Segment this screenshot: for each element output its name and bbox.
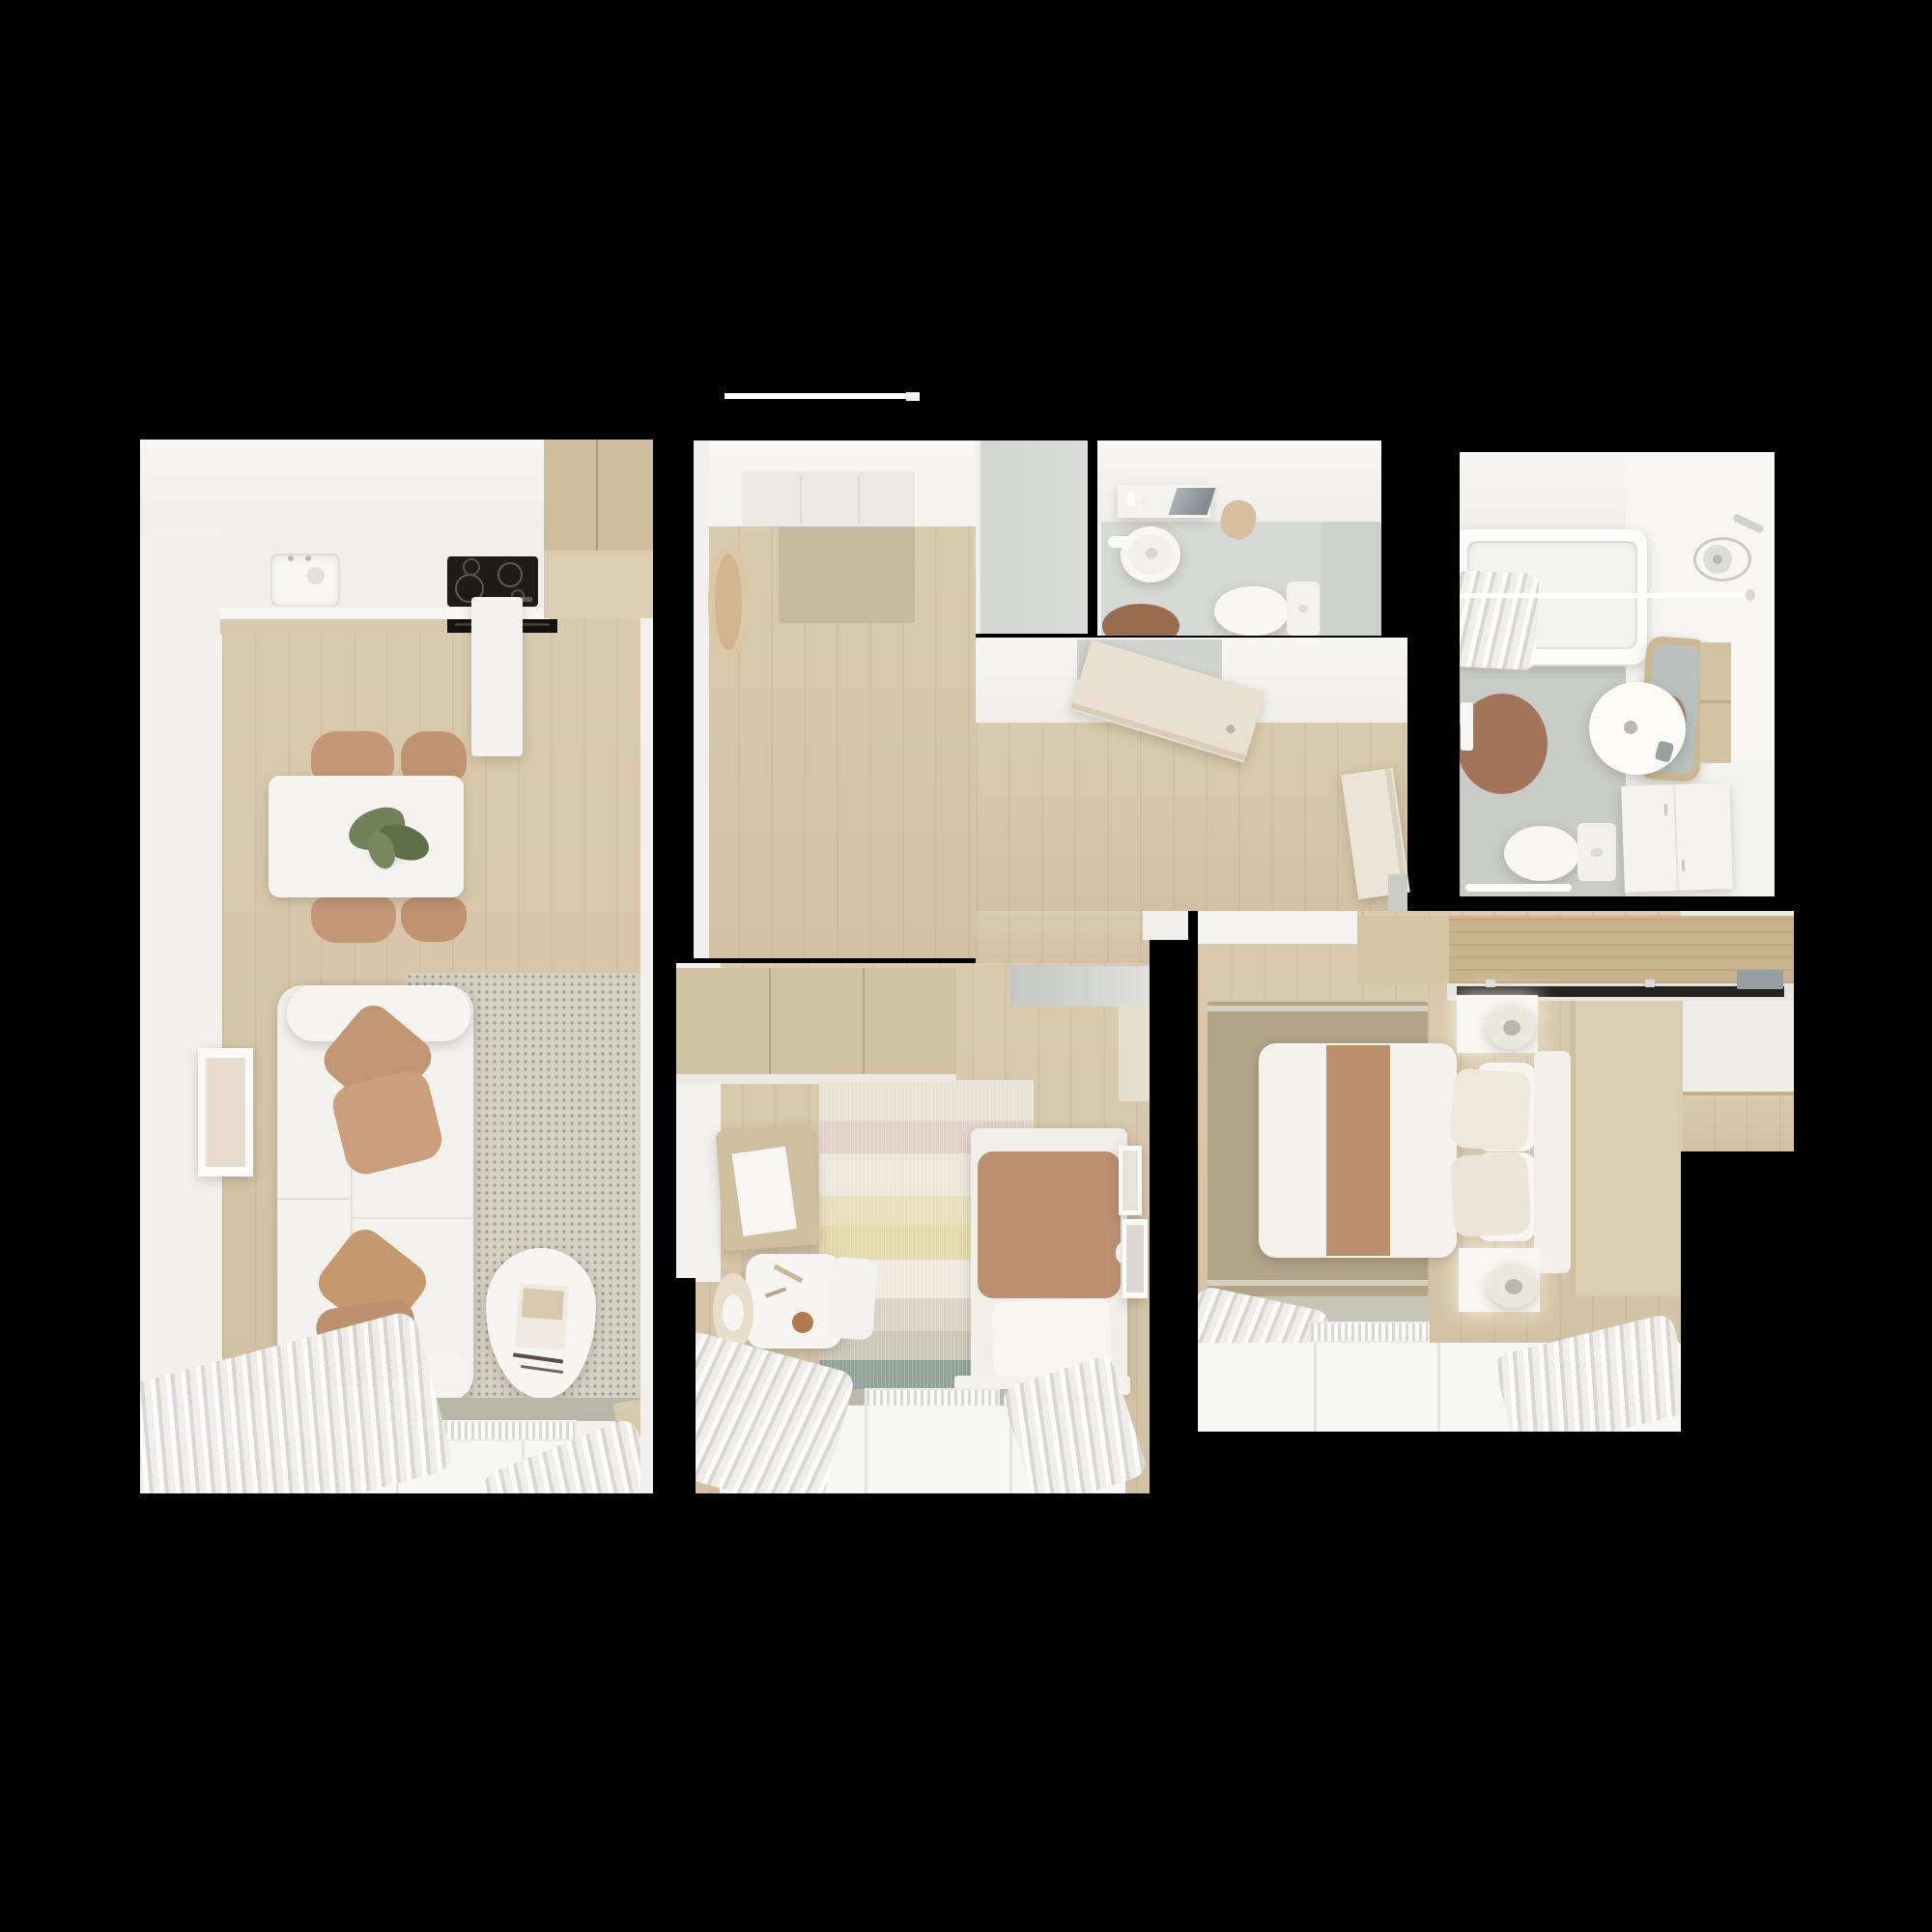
kids-cab-divider-2 xyxy=(863,968,865,1082)
master-pillow-deco-2 xyxy=(1450,1152,1531,1237)
kids-chair xyxy=(826,1256,878,1340)
ext-wood-edge xyxy=(1681,1092,1794,1095)
entry-door-line xyxy=(724,393,914,399)
master-bed-duvet xyxy=(1259,1043,1457,1258)
hall-left-wall xyxy=(694,440,709,958)
toilet-paper-holder xyxy=(1461,702,1473,751)
kids-wood-cabinet xyxy=(676,968,956,1082)
rail-pin-1 xyxy=(1486,980,1495,987)
rug-border-top xyxy=(1207,1006,1428,1011)
wardrobe-light-segment xyxy=(1357,916,1449,983)
wc-mirror xyxy=(1168,488,1215,515)
corridor-gray-sliver xyxy=(1388,874,1407,913)
nightstand-bottom xyxy=(1459,1248,1540,1312)
wc-bottle-2 xyxy=(1141,497,1151,507)
kids-wall-frame-1 xyxy=(1119,1146,1142,1215)
kids-duvet xyxy=(978,1151,1121,1298)
master-ext-wood-strip xyxy=(1681,1092,1794,1151)
vessel-drain xyxy=(1624,721,1637,734)
room-master-bedroom xyxy=(1198,911,1794,1432)
shower-curtain xyxy=(1460,570,1540,670)
art-print xyxy=(206,1058,245,1167)
towel-bar xyxy=(1465,884,1572,892)
kids-radiator xyxy=(865,1388,1000,1407)
shower-head-center xyxy=(1713,554,1722,564)
oval-mat-center xyxy=(715,554,742,650)
closet-door-line-2 xyxy=(858,475,860,524)
bath-flush-button xyxy=(1591,848,1603,857)
entry-door-tick xyxy=(906,392,920,401)
pen-2 xyxy=(521,1365,563,1374)
master-wardrobe-top xyxy=(1357,916,1794,983)
screen-end-knob xyxy=(1746,589,1755,601)
cabinet-seam xyxy=(1673,784,1679,891)
frame-1-print xyxy=(1122,1151,1138,1210)
lamp-bottom-center xyxy=(1505,1279,1522,1294)
tall-cabinet-wood xyxy=(544,440,653,618)
rail-pin-2 xyxy=(1645,980,1655,987)
corridor-floor-south xyxy=(976,911,1150,966)
vessel-sink xyxy=(1589,682,1686,775)
easel-board xyxy=(732,1147,797,1236)
rug-border-bottom xyxy=(1207,1280,1428,1286)
wc-door-handle xyxy=(1225,724,1236,734)
room-wc xyxy=(1097,440,1381,636)
shower-head xyxy=(1703,545,1732,574)
faucet-dot-2 xyxy=(305,555,311,561)
hall-rug xyxy=(779,526,915,623)
master-pillow-deco-1 xyxy=(1449,1067,1532,1151)
shower-screen-line xyxy=(1460,593,1751,598)
kids-easel xyxy=(716,1125,820,1252)
wardrobe-edge-highlight xyxy=(976,440,980,634)
master-window-line-2 xyxy=(1437,1343,1440,1432)
nightstand-top xyxy=(1457,995,1538,1053)
master-headboard xyxy=(1534,1051,1571,1273)
cabinet-handle-1 xyxy=(1664,804,1667,815)
kids-wardrobe-panel xyxy=(1119,1005,1150,1101)
kitchen-sink xyxy=(270,554,340,607)
dining-chair-top-right xyxy=(401,731,467,781)
closet-door-line xyxy=(800,475,802,524)
frame-2-print xyxy=(1126,1225,1144,1293)
master-side-counter xyxy=(1570,1001,1683,1296)
hall-oval-mat xyxy=(708,544,749,660)
kids-gray-canopy xyxy=(1009,966,1150,1007)
dining-chair-top-left xyxy=(311,731,394,781)
floorplan-canvas xyxy=(0,0,1932,1932)
towel-fold xyxy=(1234,502,1243,535)
rail-bracket xyxy=(1737,970,1783,989)
burner-ring-3 xyxy=(497,562,523,587)
corridor-wall-patch xyxy=(1143,911,1188,940)
sink-drain xyxy=(307,567,325,584)
dining-chair-bottom-right xyxy=(401,897,467,942)
wc-sink xyxy=(1121,526,1180,582)
room-bathroom xyxy=(1460,452,1775,896)
vanity-shelf-wood xyxy=(1700,642,1731,763)
wc-right-wall xyxy=(1321,522,1381,636)
wc-toilet-bowl xyxy=(1214,586,1288,636)
dining-chair-bottom-left xyxy=(311,896,396,943)
corridor-floor xyxy=(976,723,1407,911)
faucet-dot-1 xyxy=(288,555,294,561)
crayon xyxy=(765,1287,786,1297)
bath-toilet-bowl xyxy=(1504,826,1579,881)
magazine xyxy=(515,1283,569,1350)
sofa-seam-back xyxy=(277,1198,351,1200)
right-wall-strip xyxy=(640,618,653,1493)
kids-bed xyxy=(971,1128,1127,1391)
room-kids-bedroom xyxy=(676,963,1150,1493)
kids-window-line-1 xyxy=(865,1406,867,1493)
wc-bottle-1 xyxy=(1127,493,1135,506)
cabinet-lower-front xyxy=(544,551,653,618)
shelf-line xyxy=(1700,700,1731,703)
wc-faucet xyxy=(1108,536,1133,548)
burner-ring-2 xyxy=(463,558,480,576)
cabinet-handle-2 xyxy=(1682,860,1685,871)
wall-art-frame xyxy=(198,1048,253,1177)
bath-cabinet xyxy=(1621,782,1733,893)
master-ext-desk xyxy=(1681,1001,1794,1092)
toy-ring-hole xyxy=(723,1294,744,1331)
kids-black-notch xyxy=(676,1278,696,1493)
master-topleft-wall xyxy=(1198,911,1357,944)
flush-button xyxy=(1298,605,1308,612)
kitchen-island xyxy=(471,597,523,756)
kids-wall-frame-2 xyxy=(1122,1219,1148,1298)
gray-wardrobe-top xyxy=(976,440,1088,634)
wc-shelf xyxy=(1118,485,1210,518)
cookie-toy xyxy=(792,1312,813,1333)
pencil xyxy=(774,1264,804,1283)
kids-cab-divider-1 xyxy=(769,968,771,1082)
master-black-corner xyxy=(1681,1151,1794,1432)
bed-throw-runner xyxy=(1326,1045,1390,1256)
wc-sink-drain xyxy=(1146,548,1157,559)
wc-toilet-tank xyxy=(1287,582,1320,636)
magazine-photo xyxy=(522,1289,564,1321)
lamp-top-center xyxy=(1503,1020,1520,1036)
hall-closet xyxy=(742,471,915,526)
vessel-faucet xyxy=(1655,740,1675,762)
pen-1 xyxy=(513,1352,563,1363)
bath-toilet-tank xyxy=(1577,823,1616,881)
sofa-seam-seat xyxy=(351,1217,473,1219)
master-radiator xyxy=(1309,1321,1430,1343)
master-window-line-1 xyxy=(1314,1343,1317,1432)
room-kitchen-living xyxy=(140,440,653,1493)
